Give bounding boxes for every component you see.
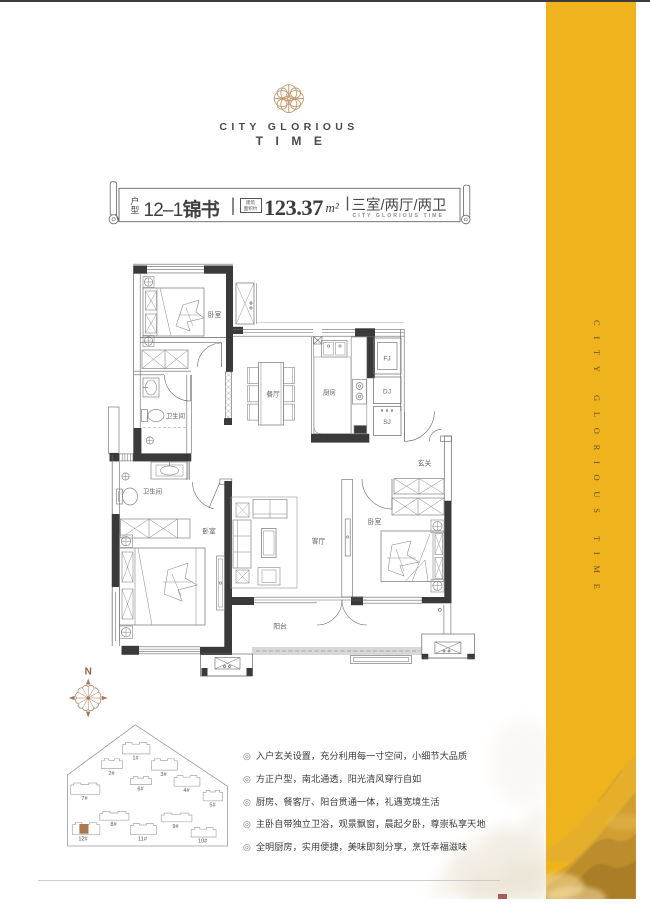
svg-text:卫生间: 卫生间 xyxy=(143,487,162,496)
svg-text:8#: 8# xyxy=(110,822,117,828)
svg-text:1#: 1# xyxy=(132,756,139,762)
svg-text:餐厅: 餐厅 xyxy=(266,390,280,399)
svg-text:客厅: 客厅 xyxy=(312,537,326,546)
svg-text:卧室: 卧室 xyxy=(368,517,382,526)
svg-text:6#: 6# xyxy=(137,787,144,793)
svg-text:DJ: DJ xyxy=(383,389,391,396)
svg-text:卧室: 卧室 xyxy=(202,527,216,536)
svg-text:5#: 5# xyxy=(209,803,216,809)
svg-text:3#: 3# xyxy=(160,772,167,778)
svg-text:N: N xyxy=(85,667,92,678)
svg-text:卧室: 卧室 xyxy=(208,310,222,319)
svg-text:10#: 10# xyxy=(198,839,208,845)
svg-text:厨房: 厨房 xyxy=(323,388,336,397)
svg-text:卫生间: 卫生间 xyxy=(166,411,185,420)
svg-text:7#: 7# xyxy=(81,796,88,802)
svg-text:阳台: 阳台 xyxy=(273,622,287,631)
svg-text:SJ: SJ xyxy=(383,419,391,426)
svg-text:9#: 9# xyxy=(172,824,179,830)
svg-text:2#: 2# xyxy=(108,771,115,777)
svg-text:玄关: 玄关 xyxy=(418,459,432,468)
svg-text:11#: 11# xyxy=(138,837,148,843)
svg-text:4#: 4# xyxy=(183,788,190,794)
svg-text:12#: 12# xyxy=(78,837,88,843)
svg-text:FJ: FJ xyxy=(383,356,390,363)
